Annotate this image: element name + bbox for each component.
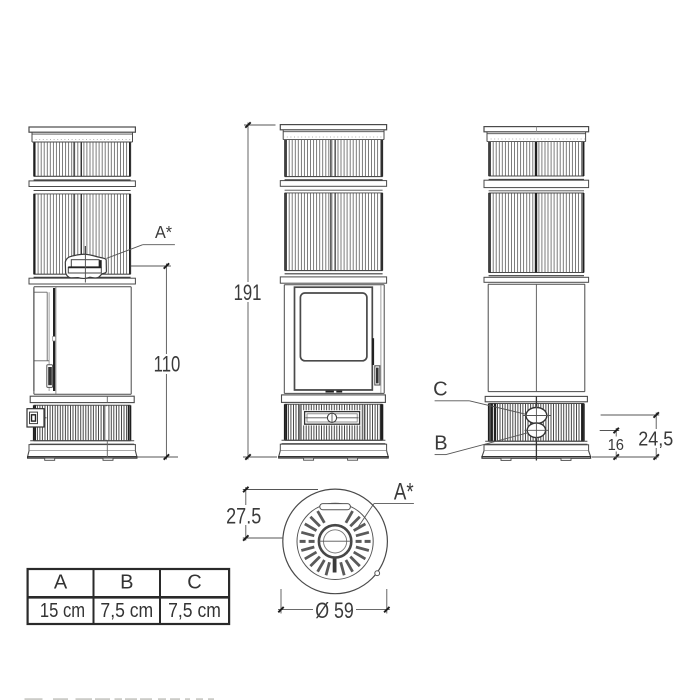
svg-text:B: B [434, 432, 447, 454]
svg-text:7,5 cm: 7,5 cm [100, 599, 153, 621]
svg-text:15 cm: 15 cm [40, 599, 85, 622]
svg-text:7,5 cm: 7,5 cm [168, 599, 221, 621]
svg-text:27.5: 27.5 [226, 505, 261, 529]
svg-text:B: B [120, 572, 133, 594]
svg-text:Ø 59: Ø 59 [315, 599, 354, 623]
svg-text:C: C [187, 572, 201, 594]
svg-text:110: 110 [154, 353, 181, 378]
svg-text:A: A [54, 572, 68, 594]
svg-text:A*: A* [155, 222, 172, 242]
svg-text:A*: A* [394, 478, 414, 505]
svg-text:24,5: 24,5 [638, 429, 673, 451]
svg-text:16: 16 [608, 436, 624, 454]
svg-text:C: C [433, 378, 447, 400]
svg-text:191: 191 [234, 281, 262, 306]
